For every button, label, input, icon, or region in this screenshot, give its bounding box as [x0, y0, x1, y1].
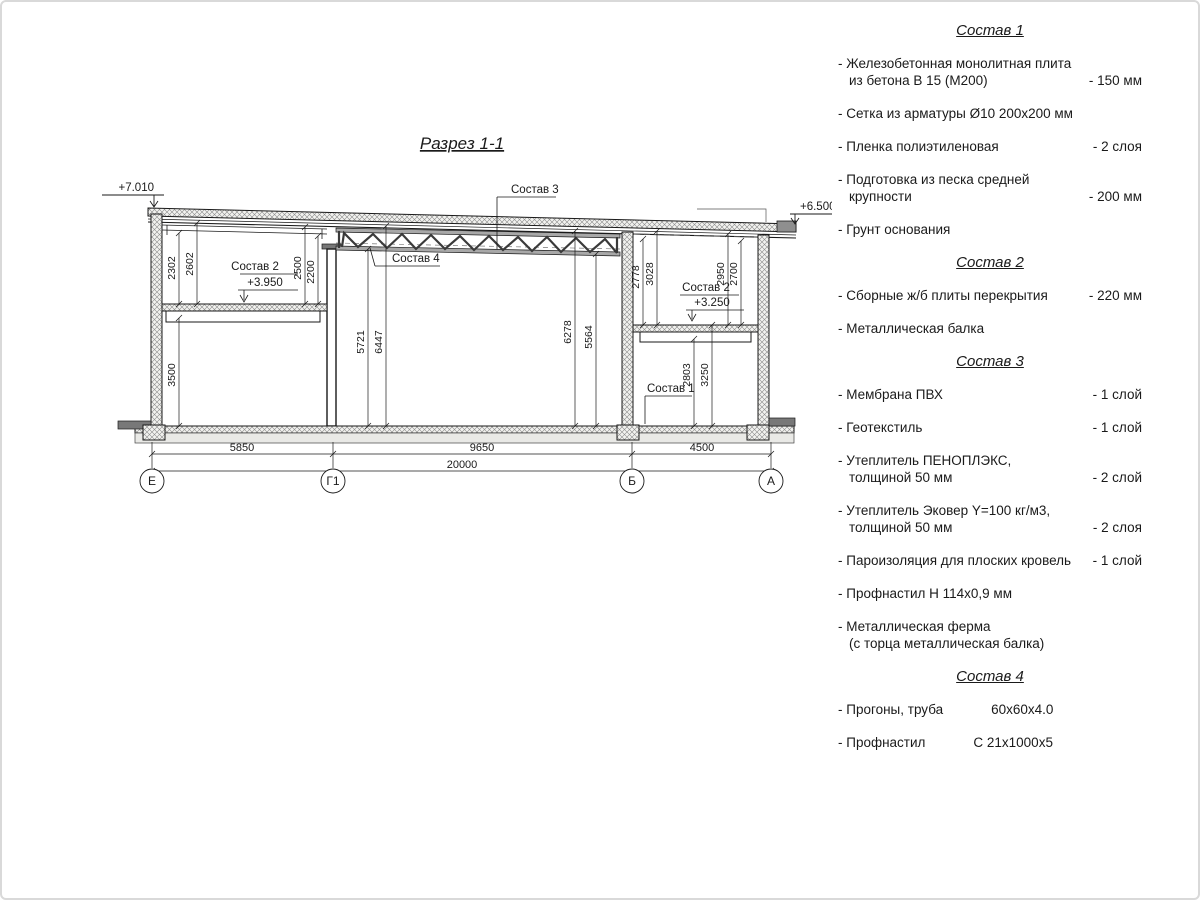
spec-section-title: Состав 2	[838, 254, 1142, 271]
spec-section-4: Состав 4 - Прогоны, труба 60х60х4.0 - Пр…	[838, 668, 1142, 751]
slab-3250	[633, 325, 758, 342]
dim-label: 6278	[562, 320, 574, 344]
spec-item: - Прогоны, труба 60х60х4.0	[838, 701, 1142, 718]
dim-label: 5850	[230, 442, 254, 454]
ground-slab	[118, 418, 795, 443]
spec-item: - Сборные ж/б плиты перекрытия - 220 мм	[838, 287, 1142, 304]
dim-label: 2803	[681, 363, 693, 387]
dim-label: 2500	[292, 256, 304, 280]
spec-item: - Мембрана ПВХ - 1 слой	[838, 386, 1142, 403]
dim-label: 2200	[305, 260, 317, 284]
spec-item: - Профнастил С 21х1000х5	[838, 734, 1142, 751]
wall-E	[151, 214, 162, 426]
level-3950: +3.950	[247, 277, 283, 289]
dim-label: 9650	[470, 442, 494, 454]
spec-item: - Металлическая ферма(с торца металличес…	[838, 618, 1142, 652]
dim-label: 2700	[728, 262, 740, 286]
axis-label: Г1	[326, 474, 339, 488]
dim-label: 3028	[644, 262, 656, 286]
footing-E	[143, 425, 165, 440]
callout-sostav2-left: Состав 2 +3.950	[231, 261, 298, 302]
spec-item: - Подготовка из песка среднейкрупности -…	[838, 171, 1142, 205]
dim-label: 3250	[699, 363, 711, 387]
spec-section-title: Состав 1	[838, 22, 1142, 39]
spec-item: - Пленка полиэтиленовая - 2 слоя	[838, 138, 1142, 155]
dim-label: 20000	[447, 459, 478, 471]
wall-A	[758, 235, 769, 426]
column-G1	[322, 244, 341, 426]
drawing-sheet: Разрез 1-1	[0, 0, 1200, 900]
axis-markers: Е Г1 Б А	[140, 469, 783, 493]
footing-A	[747, 425, 769, 440]
callout-sostav1: Состав 1	[645, 383, 695, 424]
spec-item: - Железобетонная монолитная плитаиз бето…	[838, 55, 1142, 89]
svg-text:+7.010: +7.010	[119, 182, 155, 194]
dim-label: 2950	[715, 262, 727, 286]
axis-label: Е	[148, 474, 156, 488]
callout-sostav2-right: Состав 2 +3.250	[680, 282, 744, 321]
spec-panel: Состав 1 - Железобетонная монолитная пли…	[838, 16, 1142, 767]
svg-text:Состав 4: Состав 4	[392, 253, 440, 265]
console-right	[769, 418, 795, 426]
dim-label: 6447	[373, 330, 385, 354]
left-room-ceiling	[162, 225, 327, 239]
spec-section-2: Состав 2 - Сборные ж/б плиты перекрытия …	[838, 254, 1142, 337]
dim-label: 2778	[630, 265, 642, 289]
svg-text:Состав 2: Состав 2	[231, 261, 279, 273]
spec-item: - Геотекстиль - 1 слой	[838, 419, 1142, 436]
drawing-title: Разрез 1-1	[420, 134, 504, 153]
spec-item: - Утеплитель ПЕНОПЛЭКС,толщиной 50 мм - …	[838, 452, 1142, 486]
spec-item: - Профнастил Н 114х0,9 мм	[838, 585, 1142, 602]
spec-section-title: Состав 4	[838, 668, 1142, 685]
footing-B	[617, 425, 639, 440]
dim-label: 5721	[355, 330, 367, 354]
section-drawing-svg: Разрез 1-1	[2, 2, 832, 522]
spec-item: - Пароизоляция для плоских кровель - 1 с…	[838, 552, 1142, 569]
spec-item: - Сетка из арматуры Ø10 200х200 мм	[838, 105, 1142, 122]
elevation-7010: +7.010	[102, 182, 164, 207]
spec-section-3: Состав 3 - Мембрана ПВХ - 1 слой - Геоте…	[838, 353, 1142, 652]
dim-label: 2302	[166, 256, 178, 280]
wall-B	[622, 232, 633, 426]
horizontal-dimension-labels: 5850 9650 4500 20000	[230, 442, 714, 471]
dim-label: 5564	[583, 325, 595, 349]
spec-section-1: Состав 1 - Железобетонная монолитная пли…	[838, 22, 1142, 238]
dim-label: 2602	[184, 252, 196, 276]
svg-text:+6.500: +6.500	[800, 201, 832, 213]
axis-label: Б	[628, 474, 636, 488]
spec-item: - Утеплитель Эковер Y=100 кг/м3,толщиной…	[838, 502, 1142, 536]
spec-item: - Грунт основания	[838, 221, 1142, 238]
svg-text:Состав 3: Состав 3	[511, 184, 559, 196]
dim-label: 3500	[166, 363, 178, 387]
spec-section-title: Состав 3	[838, 353, 1142, 370]
roof-end-cap	[777, 221, 796, 232]
dim-label: 4500	[690, 442, 714, 454]
spec-item: - Металлическая балка	[838, 320, 1142, 337]
elevation-6500: +6.500	[697, 201, 832, 224]
axis-label: А	[767, 474, 775, 488]
level-3250: +3.250	[694, 297, 730, 309]
